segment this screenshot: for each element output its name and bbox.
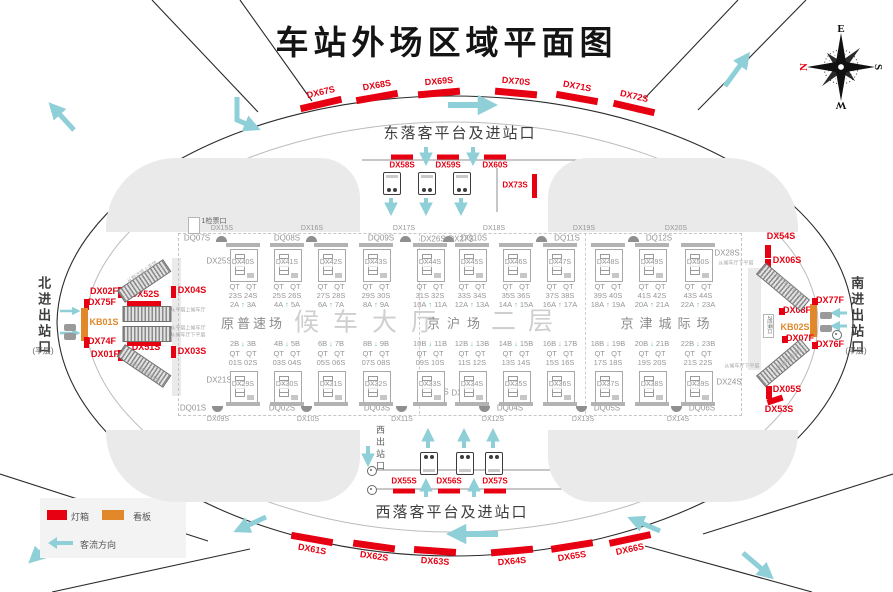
- bay-doors: 18B↓19B: [591, 340, 625, 348]
- door-flow-arrow-icon: ↑: [558, 300, 562, 309]
- car-icon: [820, 312, 832, 319]
- entrance-sign-label: DX05S: [773, 385, 802, 395]
- bay-gate-numbers: 21S 22S: [684, 359, 713, 367]
- escalator-note: 从候车厅下平层: [718, 261, 753, 267]
- entrance-sign-label: DX53S: [765, 405, 794, 415]
- station-plan-canvas: 车站外场区域平面图 灯箱 看板 客流方向 DX67SDX68SDX69SDX70…: [0, 0, 893, 592]
- bay-cap: [499, 402, 533, 406]
- platform-sign-bar: [393, 489, 415, 494]
- bay-cap: [681, 402, 715, 406]
- bay-doors: 22B↓23B: [681, 340, 715, 348]
- bay-block-glyph: [335, 273, 342, 278]
- entrance-sign-label: DX75F: [88, 298, 116, 308]
- platform-sign-label: DX59S: [435, 162, 460, 171]
- bay-gate-type: QT QT: [594, 283, 621, 291]
- bay-box-label: DX34S: [460, 381, 484, 389]
- vent-icon: [216, 236, 227, 242]
- bay-box-label: DX45S: [460, 259, 484, 267]
- bay-gate-type: QT QT: [638, 350, 665, 358]
- platform-sign-bar: [484, 489, 506, 494]
- legend-flow-label: 客流方向: [80, 538, 116, 551]
- legend-lightbox-swatch: [47, 510, 67, 520]
- bay-block-glyph: [380, 273, 387, 278]
- bay-box-label: DX30S: [275, 381, 299, 389]
- bay-doors: 10B↓11B: [413, 340, 447, 348]
- bay-gate-numbers: 11S 12S: [458, 359, 486, 367]
- hall-ref-label: DX25S: [206, 258, 231, 267]
- door-flow-arrow-icon: ↓: [696, 339, 700, 348]
- bay-gate-type: QT QT: [684, 283, 711, 291]
- compass-point-label: W: [836, 99, 847, 111]
- gate-machine-slot: [488, 469, 500, 472]
- hall-ref-label: DX28S: [714, 250, 739, 259]
- platform-sign-label: DX55S: [391, 478, 416, 487]
- entrance-sign-bar: [171, 346, 176, 358]
- entrance-sign-bar: [765, 245, 771, 258]
- compass-point-label: S: [872, 64, 884, 70]
- legend-board-label: 看板: [133, 510, 151, 523]
- west-exit-label: 西出站口: [374, 425, 384, 473]
- bay-gate-type: QT QT: [416, 283, 443, 291]
- escalator-icon: [122, 326, 171, 342]
- bay-doors: 16B↓17B: [543, 340, 577, 348]
- checkpoint-label: 2检票口: [765, 316, 771, 334]
- hall-ref-label: DX12S: [482, 416, 504, 424]
- building-strip-right: [748, 268, 761, 370]
- bay-block-glyph: [476, 395, 483, 400]
- bay-doors: 20A↑21A: [635, 301, 669, 309]
- door-flow-arrow-icon: ↑: [428, 300, 432, 309]
- gate-machine-icon: [453, 172, 471, 195]
- gate-machine-icon: [383, 172, 401, 195]
- hall-ref-label: DX09S: [207, 416, 229, 424]
- perimeter-sign-label: DX63S: [420, 556, 449, 568]
- bay-block-glyph: [520, 273, 527, 278]
- bay-gate-numbers: 35S 36S: [502, 292, 531, 300]
- entrance-sign-label: DX04S: [178, 286, 207, 296]
- door-flow-arrow-icon: ↑: [470, 300, 474, 309]
- bay-doors: 2A↑3A: [230, 301, 256, 309]
- bay-box-label: DX47S: [548, 259, 572, 267]
- checkpoint-box: [188, 217, 200, 234]
- bay-doors: 4A↑5A: [274, 301, 300, 309]
- hall-ref-label: DX20S: [665, 225, 687, 233]
- legend-lightbox-label: 灯箱: [71, 510, 89, 523]
- bay-block-glyph: [564, 395, 571, 400]
- gate-machine-dots: [457, 188, 461, 192]
- entrance-sign-label: DX01F: [91, 350, 119, 360]
- door-flow-arrow-icon: ↓: [329, 339, 333, 348]
- bay-gate-numbers: 23S 24S: [229, 292, 258, 300]
- bay-box-label: DX40S: [231, 259, 255, 267]
- bay-gate-type: QT QT: [546, 350, 573, 358]
- bay-doors: 12A↑13A: [455, 301, 489, 309]
- gate-machine-dots: [424, 455, 428, 459]
- bay-cap: [270, 402, 304, 406]
- bay-gate-numbers: 41S 42S: [638, 292, 667, 300]
- bay-block-glyph: [656, 395, 663, 400]
- bay-cap: [359, 243, 393, 247]
- building-mass: [548, 430, 798, 502]
- entrance-label: 北进出站口: [36, 276, 50, 356]
- door-flow-arrow-icon: ↑: [696, 300, 700, 309]
- gate-machine-slot: [423, 469, 435, 472]
- bay-gate-numbers: 01S 02S: [229, 359, 258, 367]
- hall-ref-label: DQ07S: [184, 235, 210, 244]
- bay-gate-type: QT QT: [273, 283, 300, 291]
- platform-sign-bar: [438, 489, 460, 494]
- bay-cap: [413, 402, 447, 406]
- bay-gate-type: QT QT: [458, 283, 485, 291]
- door-flow-arrow-icon: ↑: [285, 300, 289, 309]
- car-icon: [820, 325, 832, 332]
- gate-machine-icon: [456, 452, 474, 475]
- bay-block-glyph: [434, 395, 441, 400]
- zone-divider: [585, 233, 586, 414]
- bay-gate-type: QT QT: [502, 350, 529, 358]
- bay-box-label: DX44S: [418, 259, 442, 267]
- bay-gate-numbers: 43S 44S: [684, 292, 713, 300]
- door-flow-arrow-icon: ↑: [650, 300, 654, 309]
- bay-doors: 14B↓15B: [499, 340, 533, 348]
- zone-label: 京沪场: [427, 317, 487, 331]
- bay-doors: 6A↑7A: [318, 301, 344, 309]
- bay-cap: [314, 243, 348, 247]
- door-flow-arrow-icon: ↑: [606, 300, 610, 309]
- bay-cap: [314, 402, 348, 406]
- platform-sign-bar: [391, 155, 413, 160]
- zone-label: 二层: [491, 308, 565, 336]
- bay-gate-numbers: 19S 20S: [638, 359, 667, 367]
- entrance-sign-label: DX54S: [767, 232, 796, 242]
- door-flow-arrow-icon: ↑: [329, 300, 333, 309]
- hall-ref-label: DQ01S: [180, 405, 206, 414]
- bay-cap: [226, 243, 260, 247]
- bay-box-label: DX36S: [548, 381, 572, 389]
- west-platform-title: 西落客平台及进站口: [375, 505, 528, 522]
- zone-label: 原普速场: [221, 317, 285, 331]
- bay-cap: [591, 243, 625, 247]
- bay-cap: [543, 402, 577, 406]
- bay-gate-type: QT QT: [684, 350, 711, 358]
- bay-gate-type: QT QT: [317, 283, 344, 291]
- bay-gate-numbers: 29S 30S: [362, 292, 391, 300]
- hall-ref-label: DX14S: [667, 416, 689, 424]
- east-platform-title: 东落客平台及进站口: [383, 126, 536, 143]
- platform-sign-bar: [484, 155, 506, 160]
- bay-box-label: DX46S: [504, 259, 528, 267]
- bay-box-label: DX49S: [640, 259, 664, 267]
- bay-cap: [635, 402, 669, 406]
- bay-gate-numbers: 37S 38S: [546, 292, 575, 300]
- bay-gate-type: QT QT: [502, 283, 529, 291]
- entrance-label: 南进出站口: [849, 276, 863, 356]
- door-flow-arrow-icon: ↓: [428, 339, 432, 348]
- escalator-note: 从平层上候车厅: [170, 308, 205, 314]
- bay-block-glyph: [702, 273, 709, 278]
- bay-doors: 4B↓5B: [274, 340, 300, 348]
- entrance-sign-label: DX06S: [773, 256, 802, 266]
- bay-block-glyph: [520, 395, 527, 400]
- entrance-sign-bar: [171, 286, 176, 298]
- bay-gate-numbers: 17S 18S: [594, 359, 623, 367]
- entrance-sign-label: KB01S: [89, 318, 118, 328]
- platform-sign-label: DX56S: [436, 478, 461, 487]
- door-flow-arrow-icon: ↓: [285, 339, 289, 348]
- bay-gate-numbers: 25S 26S: [273, 292, 302, 300]
- bay-block-glyph: [702, 395, 709, 400]
- bay-block-glyph: [247, 273, 254, 278]
- hall-ref-label: DX18S: [483, 225, 505, 233]
- hall-ref-label: DX21S: [206, 377, 231, 386]
- door-flow-arrow-icon: ↓: [650, 339, 654, 348]
- bay-block-glyph: [612, 273, 619, 278]
- legend-panel: 灯箱 看板 客流方向: [40, 498, 186, 558]
- bay-doors: 10A↑11A: [413, 301, 447, 309]
- bay-gate-type: QT QT: [317, 350, 344, 358]
- bay-box-label: DX41S: [275, 259, 299, 267]
- compass-point-label: N: [798, 63, 810, 71]
- bay-gate-type: QT QT: [229, 350, 256, 358]
- bay-gate-type: QT QT: [594, 350, 621, 358]
- page-title: 车站外场区域平面图: [0, 16, 893, 64]
- bay-block-glyph: [476, 273, 483, 278]
- gate-machine-icon: [420, 452, 438, 475]
- bay-doors: 18A↑19A: [591, 301, 625, 309]
- escalator-icon: [122, 306, 171, 322]
- hall-ref-label: DX16S: [301, 225, 323, 233]
- vent-icon: [400, 236, 411, 242]
- entrance-sign-label: DX03S: [178, 347, 207, 357]
- entrance-sign-label: DX02F: [90, 287, 118, 297]
- bay-block-glyph: [564, 273, 571, 278]
- bay-box-label: DX42S: [319, 259, 343, 267]
- bay-gate-numbers: 09S 10S: [416, 359, 445, 367]
- gate-machine-icon: [418, 172, 436, 195]
- bay-block-glyph: [291, 273, 298, 278]
- bay-box-label: DX29S: [231, 381, 255, 389]
- bay-cap: [359, 402, 393, 406]
- bay-gate-type: QT QT: [458, 350, 485, 358]
- bay-gate-type: QT QT: [229, 283, 256, 291]
- platform-sign-label: DX60S: [482, 162, 507, 171]
- gate-machine-dots: [460, 455, 464, 459]
- bay-box-label: DX43S: [364, 259, 388, 267]
- bay-box-label: DX35S: [504, 381, 528, 389]
- bay-doors: 16A↑17A: [543, 301, 577, 309]
- car-icon: [64, 333, 76, 340]
- escalator-note: 从候车厅下平层: [170, 333, 205, 339]
- building-mass: [106, 158, 360, 232]
- bay-box-label: DX50S: [686, 259, 710, 267]
- bay-cap: [591, 402, 625, 406]
- entrance-sign-label: DX76F: [816, 340, 844, 350]
- vent-icon: [536, 236, 547, 242]
- gate-machine-dots: [489, 455, 493, 459]
- hall-ref-label: DX19S: [573, 225, 595, 233]
- bay-gate-numbers: 31S 32S: [416, 292, 445, 300]
- bay-cap: [455, 402, 489, 406]
- platform-sign-bar: [532, 174, 537, 198]
- entrance-floor-note: (平层): [32, 348, 53, 357]
- bay-gate-numbers: 15S 16S: [546, 359, 575, 367]
- gate-machine-slot: [386, 175, 398, 178]
- bay-cap: [413, 243, 447, 247]
- flow-arrow-icon-stem: [56, 541, 73, 545]
- bay-block-glyph: [612, 395, 619, 400]
- gate-symbol: [367, 466, 377, 476]
- entrance-sign-label: KB02S: [780, 323, 809, 333]
- bay-block-glyph: [335, 395, 342, 400]
- compass-point-label: E: [837, 23, 844, 35]
- door-flow-arrow-icon: ↑: [241, 300, 245, 309]
- bay-block-glyph: [291, 395, 298, 400]
- bay-doors: 2B↓3B: [230, 340, 256, 348]
- bay-cap: [681, 243, 715, 247]
- bay-box-label: DX37S: [596, 381, 620, 389]
- hall-ref-label: DX13S: [572, 416, 594, 424]
- bay-gate-numbers: 39S 40S: [594, 292, 623, 300]
- bay-box-label: DX33S: [418, 381, 442, 389]
- bay-doors: 20B↓21B: [635, 340, 669, 348]
- bay-doors: 6B↓7B: [318, 340, 344, 348]
- bay-doors: 8A↑9A: [363, 301, 389, 309]
- gate-machine-slot: [421, 175, 433, 178]
- gate-machine-slot: [456, 175, 468, 178]
- bay-box-label: DX32S: [364, 381, 388, 389]
- door-flow-arrow-icon: ↑: [514, 300, 518, 309]
- hall-ref-label: DX24S: [716, 379, 741, 388]
- gate-machine-dots: [387, 188, 391, 192]
- door-flow-arrow-icon: ↓: [470, 339, 474, 348]
- escalator-note: 从平层上候车厅: [170, 326, 205, 332]
- bay-block-glyph: [434, 273, 441, 278]
- door-flow-arrow-icon: ↓: [514, 339, 518, 348]
- gate-machine-slot: [459, 469, 471, 472]
- bay-doors: 12B↓13B: [455, 340, 489, 348]
- bay-gate-type: QT QT: [273, 350, 300, 358]
- zone-label: 京津城际场: [620, 317, 715, 331]
- legend-board-swatch: [102, 510, 124, 520]
- entrance-sign-label: DX77F: [816, 296, 844, 306]
- door-flow-arrow-icon: ↓: [241, 339, 245, 348]
- bay-gate-type: QT QT: [638, 283, 665, 291]
- building-mass: [548, 158, 798, 232]
- bay-doors: 8B↓9B: [363, 340, 389, 348]
- door-flow-arrow-icon: ↓: [374, 339, 378, 348]
- bay-cap: [270, 243, 304, 247]
- hall-ref-label: DX15S: [211, 225, 233, 233]
- signboard-bar: [810, 304, 817, 337]
- platform-sign-label: DX73S: [502, 182, 527, 191]
- bay-cap: [455, 243, 489, 247]
- escalator-note: 从候车厅下平层: [724, 364, 759, 370]
- bay-gate-numbers: 27S 28S: [317, 292, 346, 300]
- door-flow-arrow-icon: ↓: [606, 339, 610, 348]
- bay-box-label: DX31S: [319, 381, 343, 389]
- gate-symbol: [367, 485, 377, 495]
- hall-ref-label: DX17S: [393, 225, 415, 233]
- bay-gate-numbers: 03S 04S: [273, 359, 302, 367]
- hall-ref-label: DX11S: [391, 416, 413, 424]
- bay-block-glyph: [656, 273, 663, 278]
- gate-machine-dots: [422, 188, 426, 192]
- bay-cap: [543, 243, 577, 247]
- bay-gate-numbers: 05S 06S: [317, 359, 346, 367]
- bay-box-label: DX38S: [640, 381, 664, 389]
- bay-doors: 22A↑23A: [681, 301, 715, 309]
- bay-cap: [635, 243, 669, 247]
- bay-cap: [226, 402, 260, 406]
- bay-gate-numbers: 13S 14S: [502, 359, 531, 367]
- door-flow-arrow-icon: ↓: [558, 339, 562, 348]
- bay-gate-type: QT QT: [546, 283, 573, 291]
- bay-box-label: DX39S: [686, 381, 710, 389]
- bay-box-label: DX48S: [596, 259, 620, 267]
- platform-sign-label: DX57S: [482, 478, 507, 487]
- platform-sign-bar: [437, 155, 459, 160]
- bay-block-glyph: [380, 395, 387, 400]
- bay-gate-numbers: 33S 34S: [458, 292, 487, 300]
- hall-ref-label: DX10S: [297, 416, 319, 424]
- entrance-sign-label: DX74F: [88, 337, 116, 347]
- vent-icon: [306, 236, 317, 242]
- vent-icon: [628, 236, 639, 242]
- bay-cap: [499, 243, 533, 247]
- bay-block-glyph: [247, 395, 254, 400]
- bay-gate-numbers: 07S 08S: [362, 359, 391, 367]
- car-icon: [64, 324, 76, 331]
- bay-gate-type: QT QT: [416, 350, 443, 358]
- bay-doors: 14A↑15A: [499, 301, 533, 309]
- platform-sign-label: DX58S: [389, 162, 414, 171]
- entrance-floor-note: (平层): [845, 348, 866, 357]
- gate-machine-icon: [485, 452, 503, 475]
- door-flow-arrow-icon: ↑: [374, 300, 378, 309]
- building-mass: [106, 430, 360, 502]
- bay-gate-type: QT QT: [362, 350, 389, 358]
- bay-gate-type: QT QT: [362, 283, 389, 291]
